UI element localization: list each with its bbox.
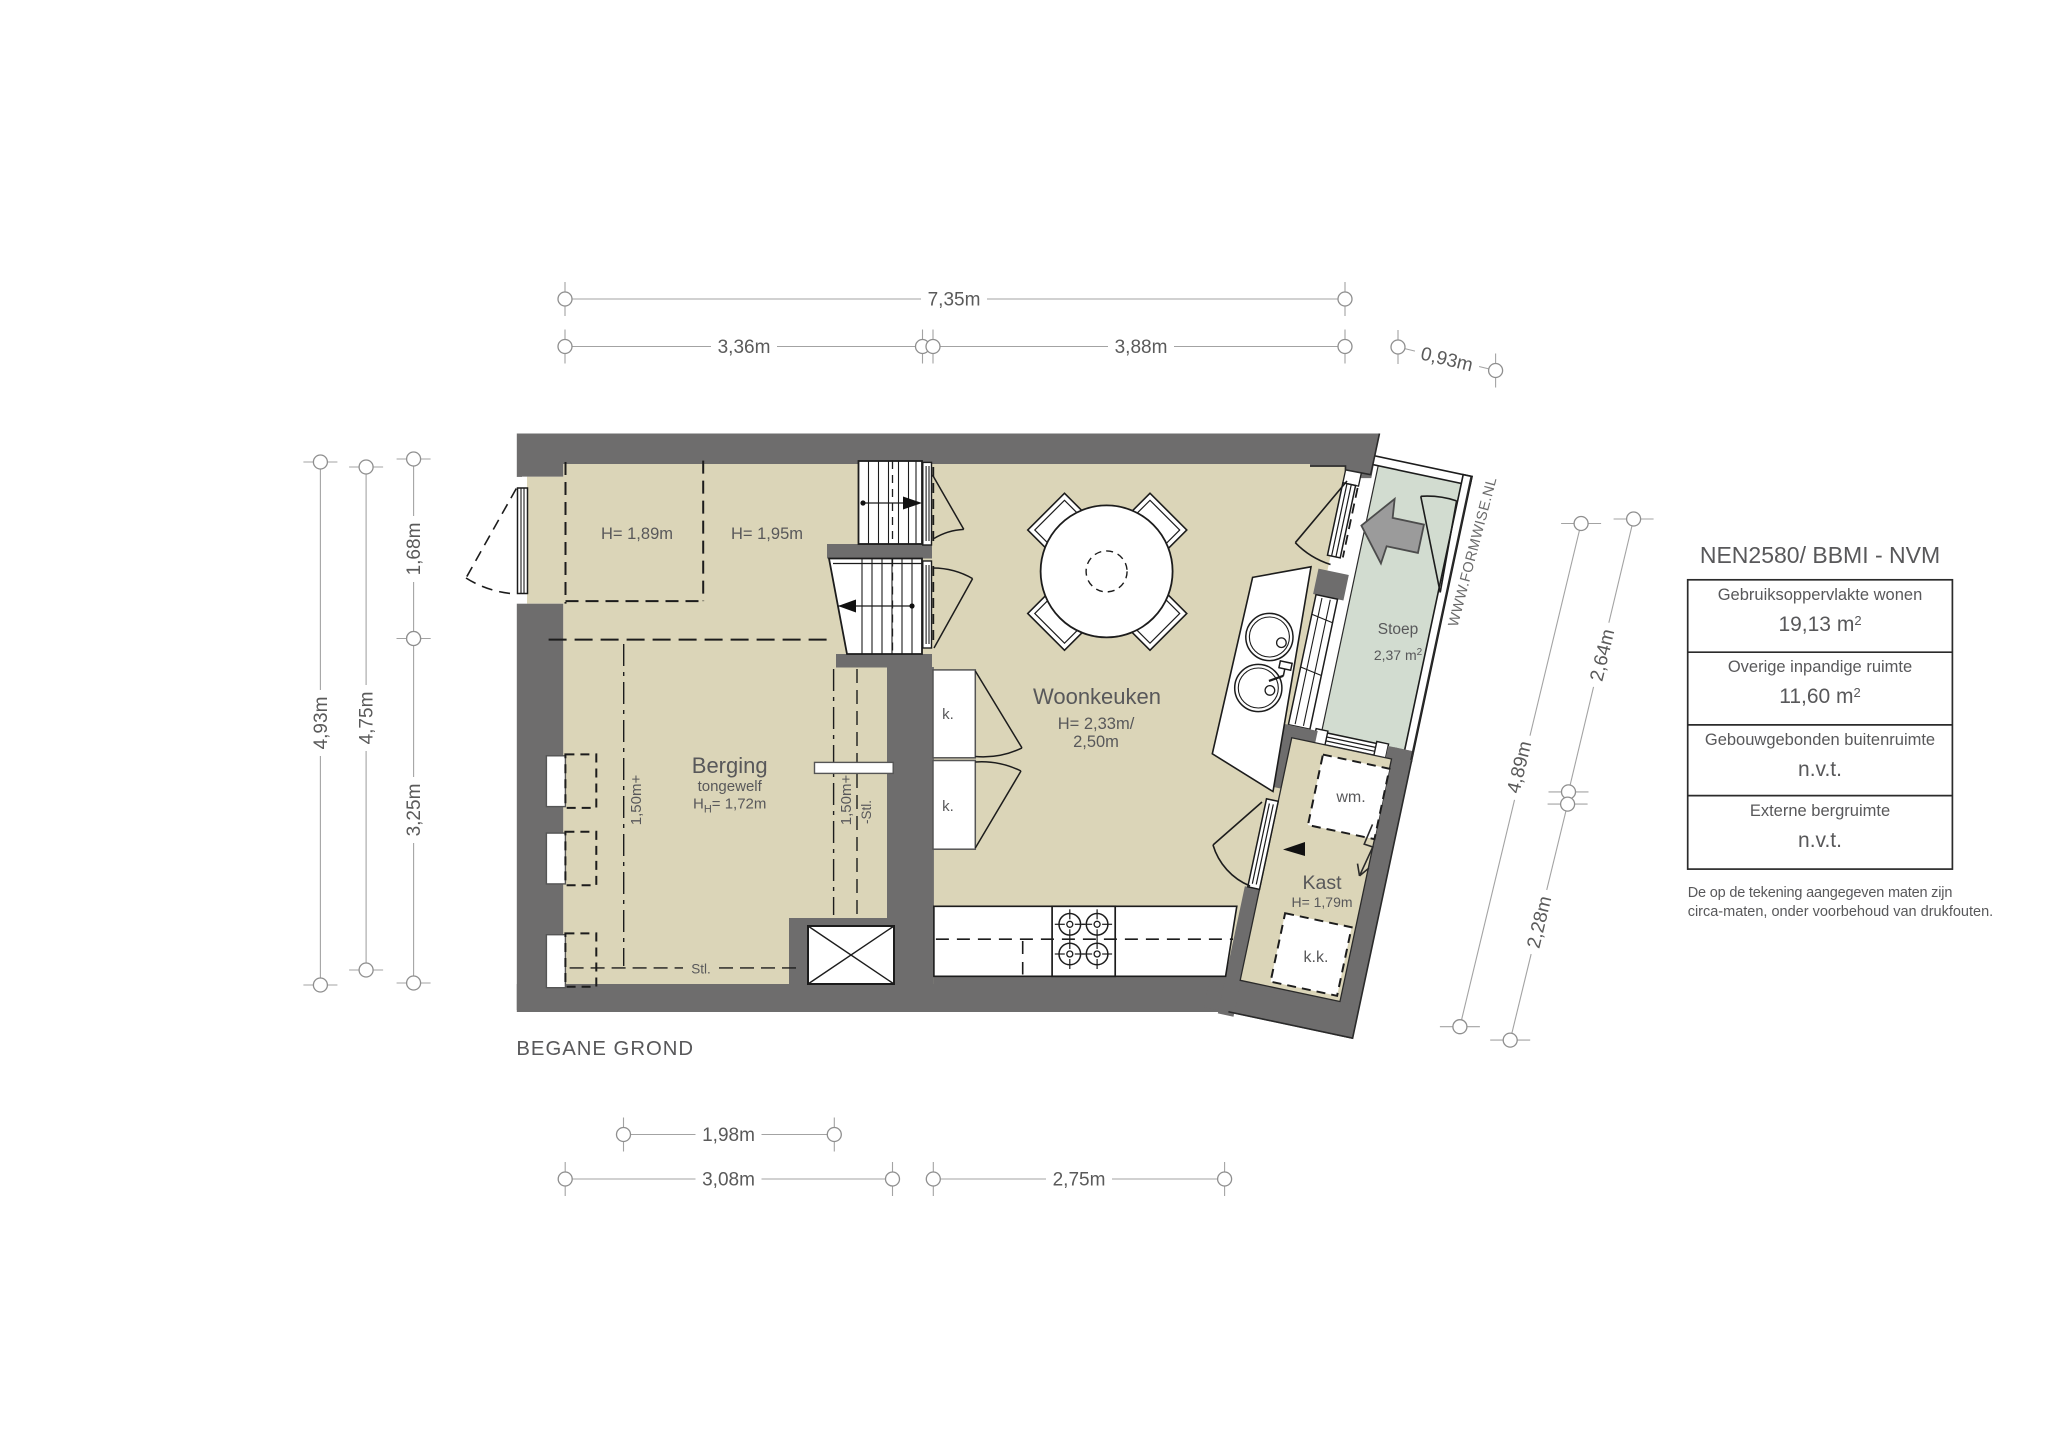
svg-text:Gebouwgebonden buitenruimte: Gebouwgebonden buitenruimte bbox=[1705, 731, 1935, 749]
svg-text:BEGANE GROND: BEGANE GROND bbox=[516, 1038, 694, 1060]
svg-text:H= 1,79m: H= 1,79m bbox=[1291, 894, 1352, 910]
svg-text:3,25m: 3,25m bbox=[404, 784, 425, 837]
svg-text:Externe bergruimte: Externe bergruimte bbox=[1750, 802, 1890, 820]
svg-text:n.v.t.: n.v.t. bbox=[1798, 829, 1842, 852]
svg-text:NEN2580/ BBMI - NVM: NEN2580/ BBMI - NVM bbox=[1700, 542, 1940, 568]
svg-text:3,08m: 3,08m bbox=[702, 1170, 755, 1191]
svg-text:De op de tekening aangegeven m: De op de tekening aangegeven maten zijn bbox=[1688, 885, 1953, 901]
svg-text:11,60 m2: 11,60 m2 bbox=[1779, 685, 1861, 708]
svg-text:4,93m: 4,93m bbox=[311, 697, 332, 750]
svg-text:3,36m: 3,36m bbox=[718, 337, 771, 358]
svg-text:k.: k. bbox=[942, 706, 954, 723]
svg-text:Stl.: Stl. bbox=[691, 962, 711, 977]
svg-text:Gebruiksoppervlakte wonen: Gebruiksoppervlakte wonen bbox=[1718, 586, 1923, 604]
svg-text:1,50m+: 1,50m+ bbox=[838, 775, 855, 826]
svg-text:Berging: Berging bbox=[692, 753, 768, 778]
svg-text:7,35m: 7,35m bbox=[928, 290, 981, 311]
svg-text:1,50m+: 1,50m+ bbox=[628, 775, 645, 826]
svg-text:1,98m: 1,98m bbox=[702, 1125, 755, 1146]
svg-text:1,68m: 1,68m bbox=[404, 523, 425, 576]
svg-text:Stoep: Stoep bbox=[1378, 621, 1419, 638]
svg-text:H= 1,95m: H= 1,95m bbox=[731, 525, 803, 543]
svg-text:4,75m: 4,75m bbox=[357, 692, 378, 745]
svg-text:k.k.: k.k. bbox=[1304, 949, 1329, 966]
svg-text:wm.: wm. bbox=[1335, 789, 1365, 806]
svg-text:k.: k. bbox=[942, 798, 954, 815]
svg-text:2,50m: 2,50m bbox=[1073, 733, 1119, 751]
svg-text:Overige inpandige ruimte: Overige inpandige ruimte bbox=[1728, 658, 1912, 676]
svg-text:n.v.t.: n.v.t. bbox=[1798, 758, 1842, 781]
svg-text:Woonkeuken: Woonkeuken bbox=[1033, 684, 1161, 709]
svg-text:19,13 m2: 19,13 m2 bbox=[1778, 613, 1861, 636]
svg-text:-Stl.: -Stl. bbox=[859, 800, 874, 824]
svg-text:H= 1,89m: H= 1,89m bbox=[601, 525, 673, 543]
svg-text:2,37 m2: 2,37 m2 bbox=[1374, 647, 1423, 663]
svg-text:circa-maten, onder voorbehoud: circa-maten, onder voorbehoud van drukfo… bbox=[1688, 904, 1994, 920]
svg-text:H= 2,33m/: H= 2,33m/ bbox=[1058, 715, 1135, 733]
svg-text:2,75m: 2,75m bbox=[1053, 1170, 1106, 1191]
svg-text:tongewelf: tongewelf bbox=[698, 778, 763, 795]
svg-text:3,88m: 3,88m bbox=[1115, 337, 1168, 358]
svg-text:Kast: Kast bbox=[1302, 872, 1342, 894]
